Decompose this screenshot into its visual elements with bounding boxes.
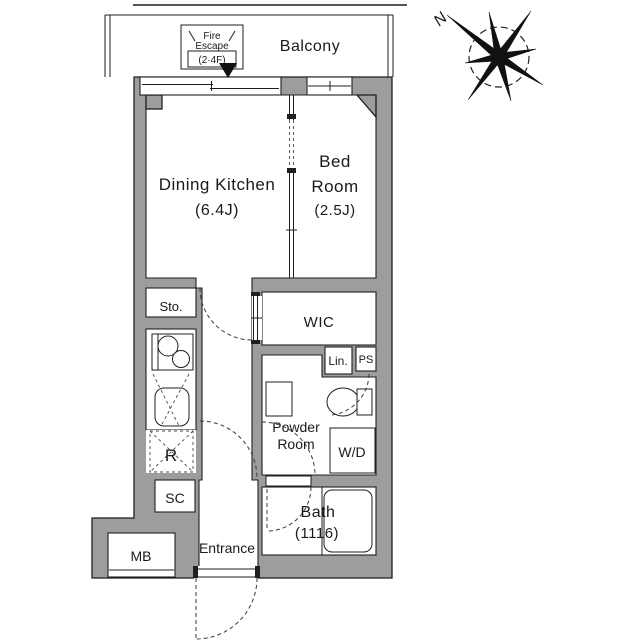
dining-kitchen-label: Dining Kitchen <box>159 175 276 194</box>
dk-corner-pier <box>146 95 162 109</box>
ps-label: PS <box>359 354 374 366</box>
powder-room-label-2: Room <box>277 436 314 452</box>
fire-escape-line2: Escape <box>195 41 229 52</box>
balcony-label: Balcony <box>280 38 340 55</box>
bath-size: (1116) <box>295 525 339 542</box>
bathtub <box>322 487 372 555</box>
compass-rose-icon: N <box>431 9 543 101</box>
washbasin <box>266 382 292 416</box>
powder-room-label-1: Powder <box>272 419 320 435</box>
bath-doorway <box>266 476 311 486</box>
bath-label: Bath <box>301 504 336 521</box>
toilet <box>327 388 372 416</box>
bed-room-size: (2.5J) <box>314 202 355 219</box>
fire-escape-floors: (2·4F) <box>198 55 225 66</box>
entrance-door-threshold <box>193 566 260 579</box>
stove <box>152 334 193 370</box>
bed-room-label-1: Bed <box>319 152 351 171</box>
shoe-closet-label: SC <box>165 490 184 506</box>
dining-kitchen-size: (6.4J) <box>195 202 239 219</box>
floor-plan: N Balcony Fire Escape (2·4F) Dining Kitc… <box>0 0 640 640</box>
wic-label: WIC <box>304 314 335 331</box>
bed-room-label-2: Room <box>311 177 358 196</box>
compass-north-label: N <box>431 9 451 30</box>
wic-door <box>251 292 262 344</box>
entrance-door-arc <box>196 578 257 639</box>
dk-window <box>140 77 281 95</box>
storage-label: Sto. <box>159 299 182 314</box>
refrigerator-label: R <box>165 446 177 465</box>
balcony-outline <box>105 15 393 77</box>
meter-box-label: MB <box>131 548 152 564</box>
floor-plan-canvas: N Balcony Fire Escape (2·4F) Dining Kitc… <box>0 0 640 640</box>
kitchen-sink <box>155 388 189 426</box>
entrance-label: Entrance <box>199 540 255 556</box>
washer-dryer-label: W/D <box>338 444 365 460</box>
linen-label: Lin. <box>328 354 347 368</box>
